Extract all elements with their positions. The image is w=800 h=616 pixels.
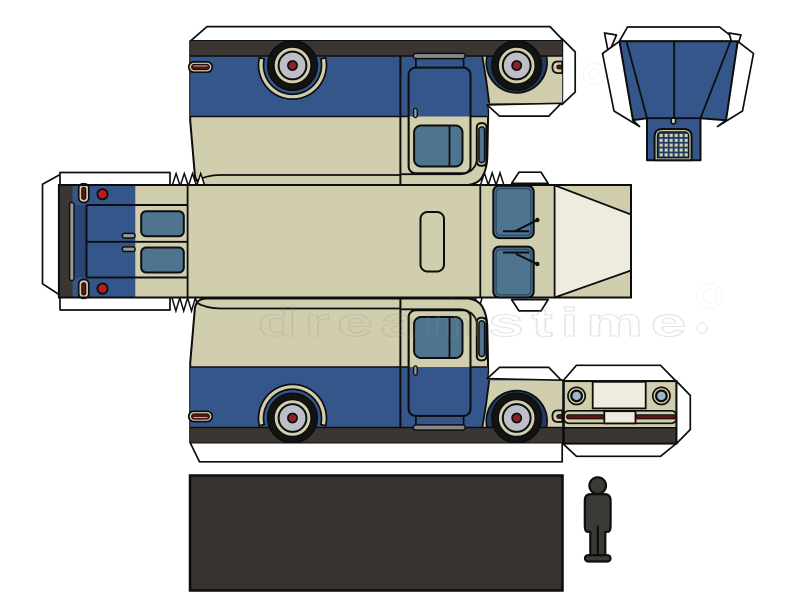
svg-text:dreamstime: dreamstime (258, 301, 694, 345)
